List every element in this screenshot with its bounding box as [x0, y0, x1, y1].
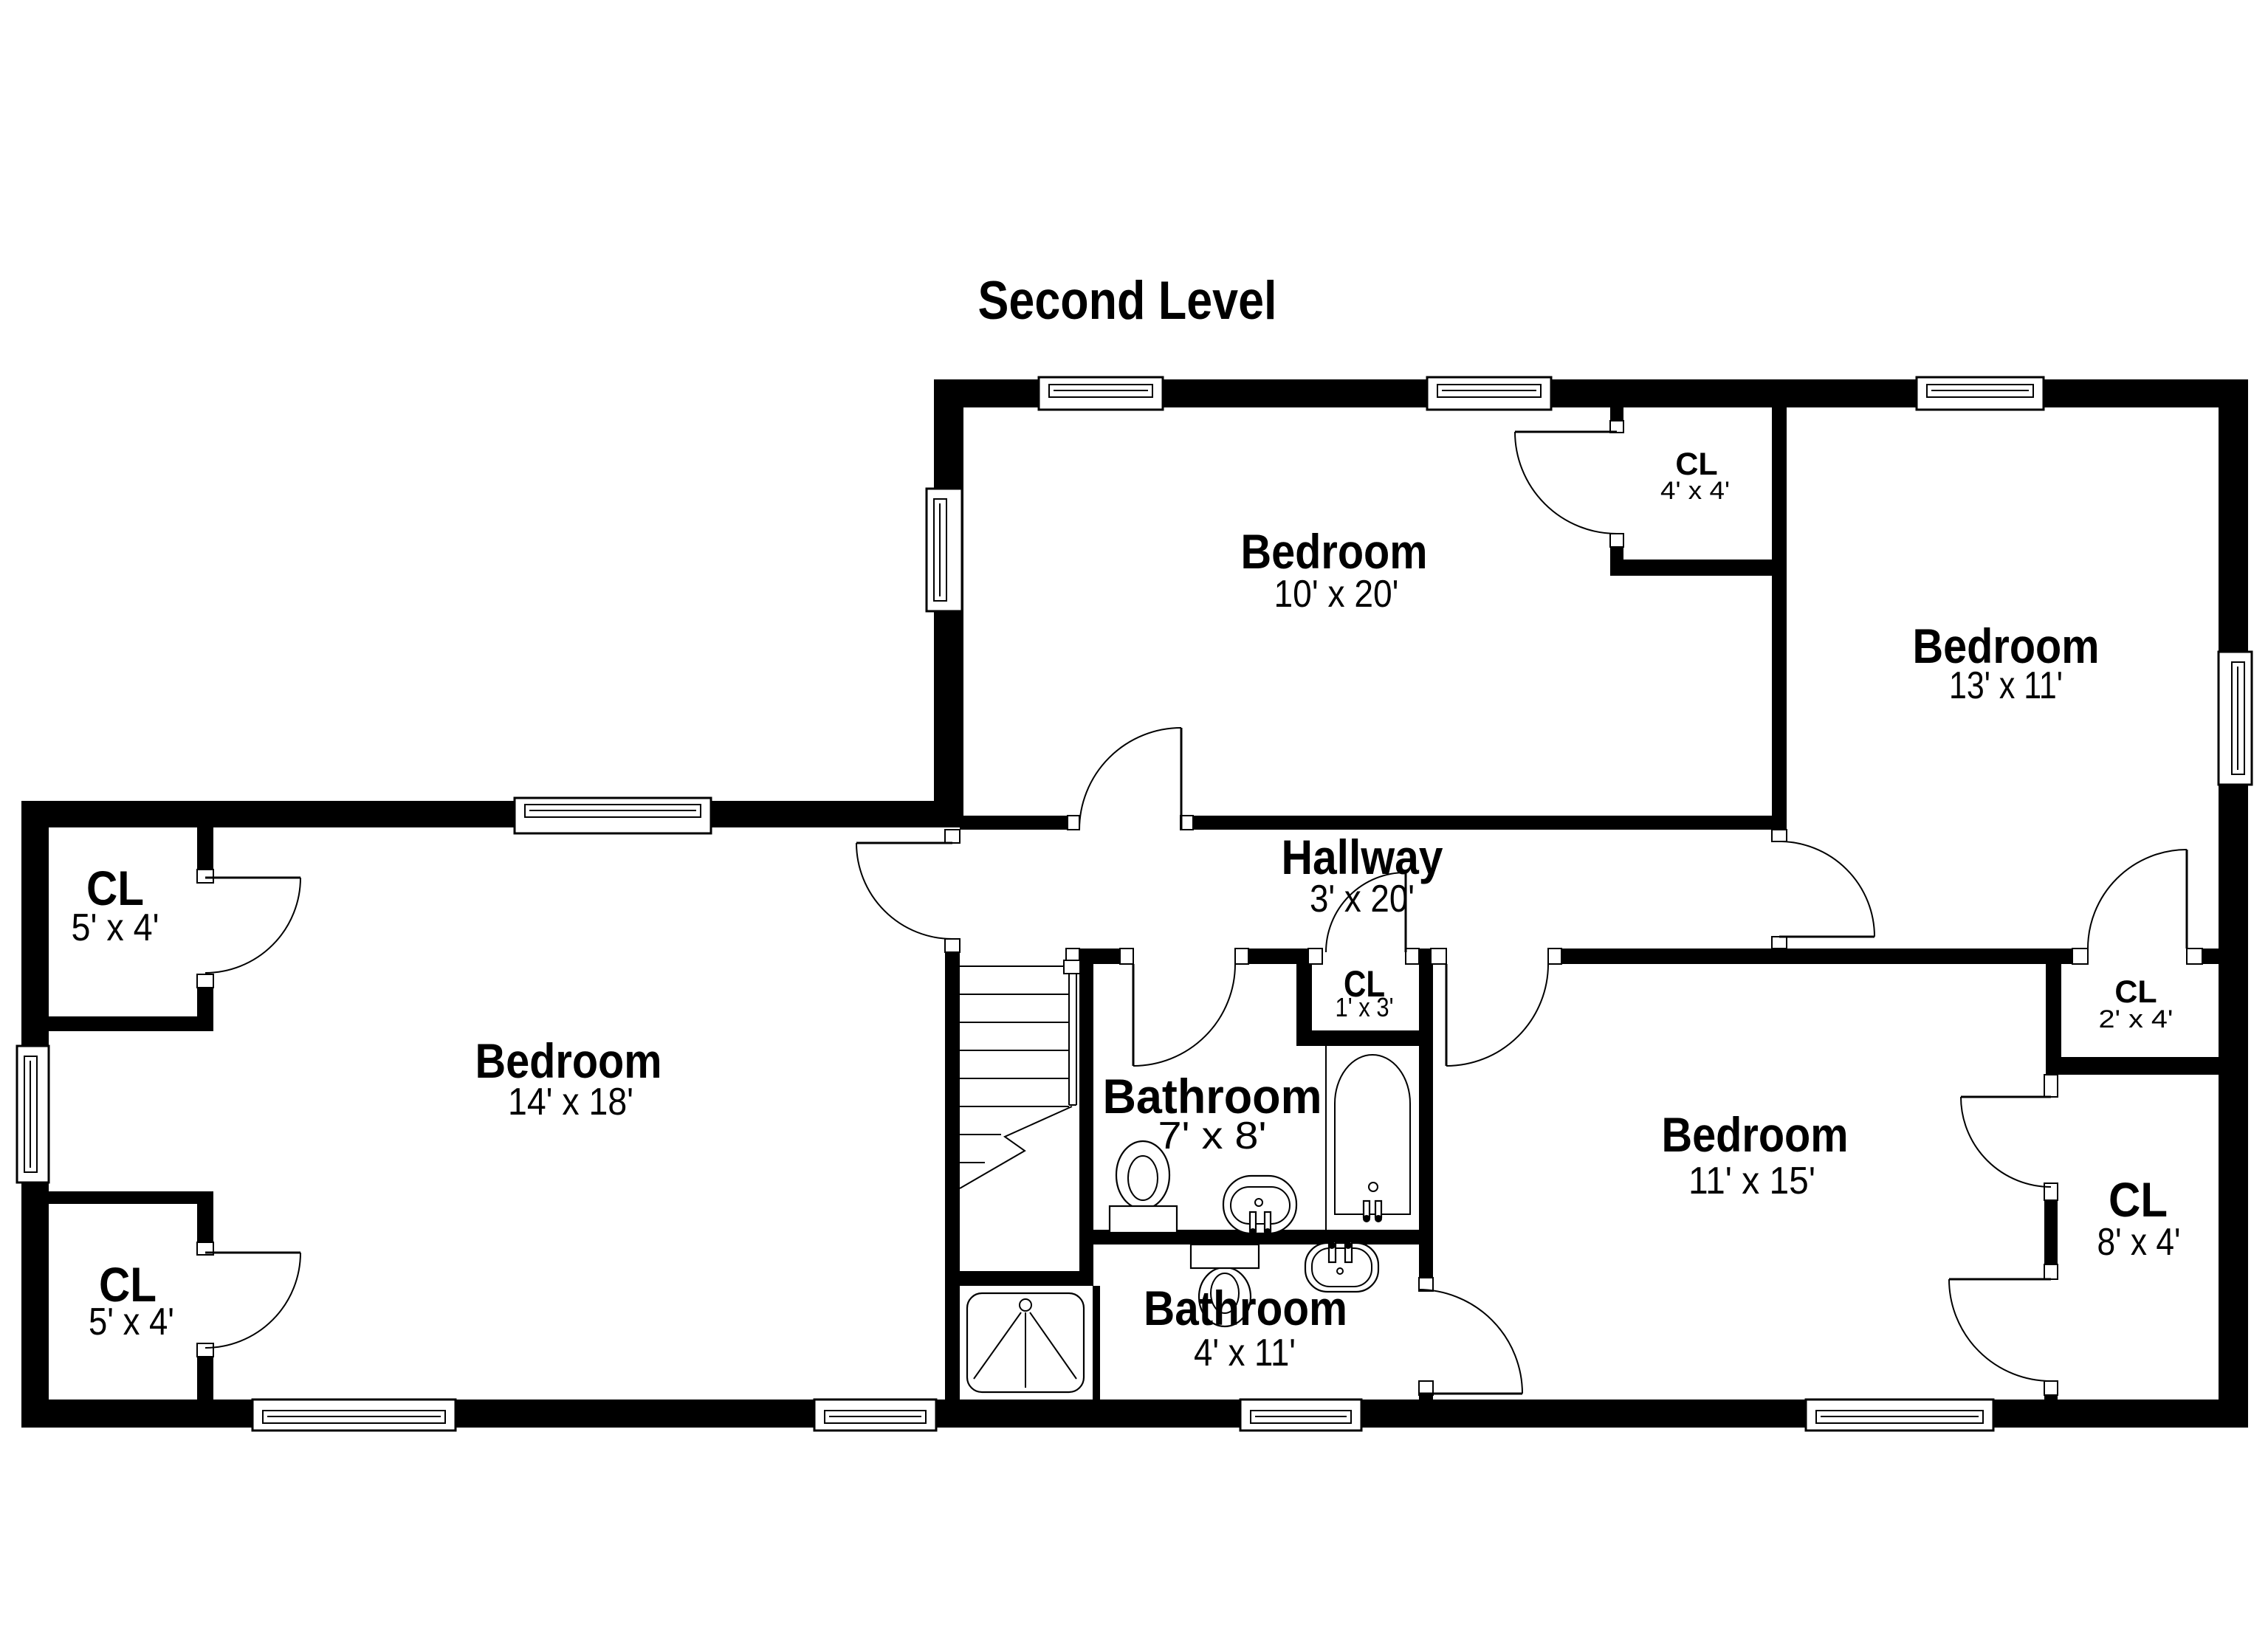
svg-text:3' x 20': 3' x 20': [1310, 878, 1415, 920]
svg-text:10' x 20': 10' x 20': [1274, 573, 1399, 616]
svg-text:13' x 11': 13' x 11': [1949, 664, 2063, 707]
svg-text:CL: CL: [2109, 1172, 2168, 1227]
svg-text:Bedroom: Bedroom: [475, 1033, 662, 1088]
svg-text:Bathroom: Bathroom: [1144, 1281, 1347, 1335]
svg-text:Second Level: Second Level: [978, 271, 1277, 331]
svg-text:5' x 4': 5' x 4': [89, 1301, 174, 1343]
svg-text:11' x 15': 11' x 15': [1688, 1160, 1815, 1202]
svg-text:8' x 4': 8' x 4': [2097, 1221, 2181, 1264]
svg-text:Bedroom: Bedroom: [1662, 1107, 1849, 1162]
svg-text:7' x 8': 7' x 8': [1158, 1115, 1267, 1157]
svg-text:CL: CL: [2114, 974, 2157, 1010]
svg-text:4' x 4': 4' x 4': [1660, 477, 1730, 505]
svg-text:Bedroom: Bedroom: [1241, 524, 1428, 579]
svg-text:1' x 3': 1' x 3': [1336, 992, 1394, 1022]
svg-text:14' x 18': 14' x 18': [508, 1081, 633, 1123]
svg-text:4' x 11': 4' x 11': [1194, 1332, 1296, 1374]
svg-text:5' x 4': 5' x 4': [72, 906, 159, 949]
svg-text:Hallway: Hallway: [1282, 830, 1443, 884]
svg-text:2' x 4': 2' x 4': [2099, 1005, 2173, 1033]
